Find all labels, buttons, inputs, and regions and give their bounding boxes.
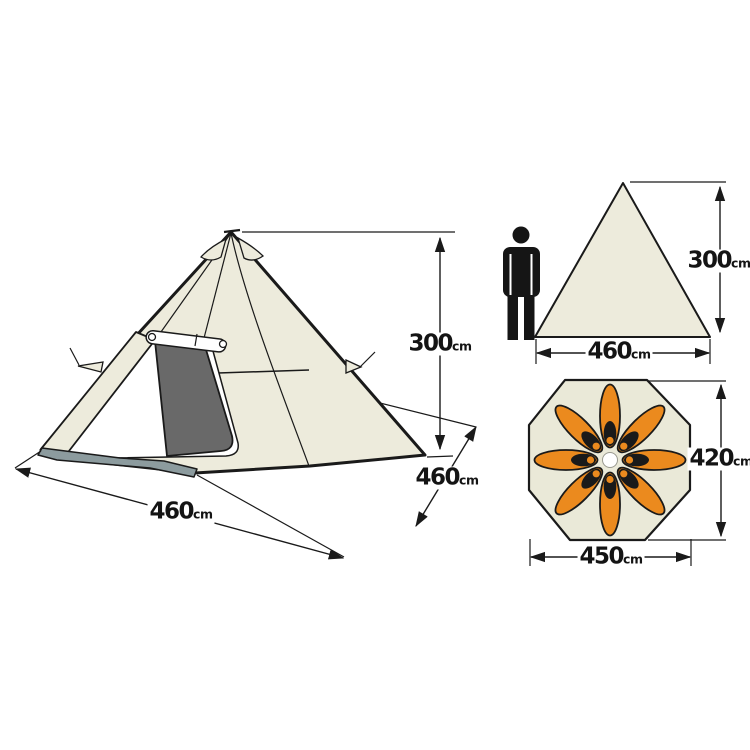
dim-label-floor-depth: 420cm bbox=[688, 448, 750, 471]
dim-value: 450 bbox=[580, 544, 624, 570]
dim-value: 460 bbox=[416, 465, 460, 491]
floor-plan-view bbox=[529, 380, 726, 566]
dim-value: 300 bbox=[688, 248, 732, 274]
human-figure bbox=[503, 227, 540, 341]
diagram-svg bbox=[0, 0, 750, 750]
dim-unit: cm bbox=[459, 473, 478, 488]
triangle-silhouette bbox=[535, 183, 710, 337]
dim-unit: cm bbox=[733, 454, 750, 469]
dim-unit: cm bbox=[731, 256, 750, 271]
dim-value: 300 bbox=[409, 331, 453, 357]
dim-label-perspective-side-depth: 460cm bbox=[414, 467, 481, 490]
dim-label-floor-width: 450cm bbox=[578, 546, 645, 569]
human-head bbox=[513, 227, 530, 244]
dim-value: 420 bbox=[690, 446, 734, 472]
sleeping-bag bbox=[600, 385, 620, 448]
peak-tip bbox=[224, 230, 240, 232]
dim-value: 460 bbox=[588, 339, 632, 365]
center-pole-hole bbox=[603, 453, 618, 468]
dim-label-perspective-front-width: 460cm bbox=[148, 501, 215, 524]
guy-tab-left bbox=[70, 348, 103, 372]
dim-label-perspective-height: 300cm bbox=[407, 333, 474, 356]
tent-perspective-view bbox=[15, 230, 476, 558]
sleeping-bag bbox=[600, 473, 620, 536]
dim-value: 460 bbox=[150, 499, 194, 525]
dim-label-side-height: 300cm bbox=[686, 250, 750, 273]
dim-unit: cm bbox=[193, 507, 212, 522]
dim-unit: cm bbox=[452, 339, 471, 354]
tent-dimension-diagram: 300cm 460cm 460cm 300cm 460cm 420cm 450c… bbox=[0, 0, 750, 750]
guy-tab-right bbox=[346, 352, 375, 373]
dim-unit: cm bbox=[623, 552, 642, 567]
sleeping-bag bbox=[535, 450, 598, 470]
dim-unit: cm bbox=[631, 347, 650, 362]
dim-label-side-base-width: 460cm bbox=[586, 341, 653, 364]
sleeping-bag bbox=[623, 450, 686, 470]
